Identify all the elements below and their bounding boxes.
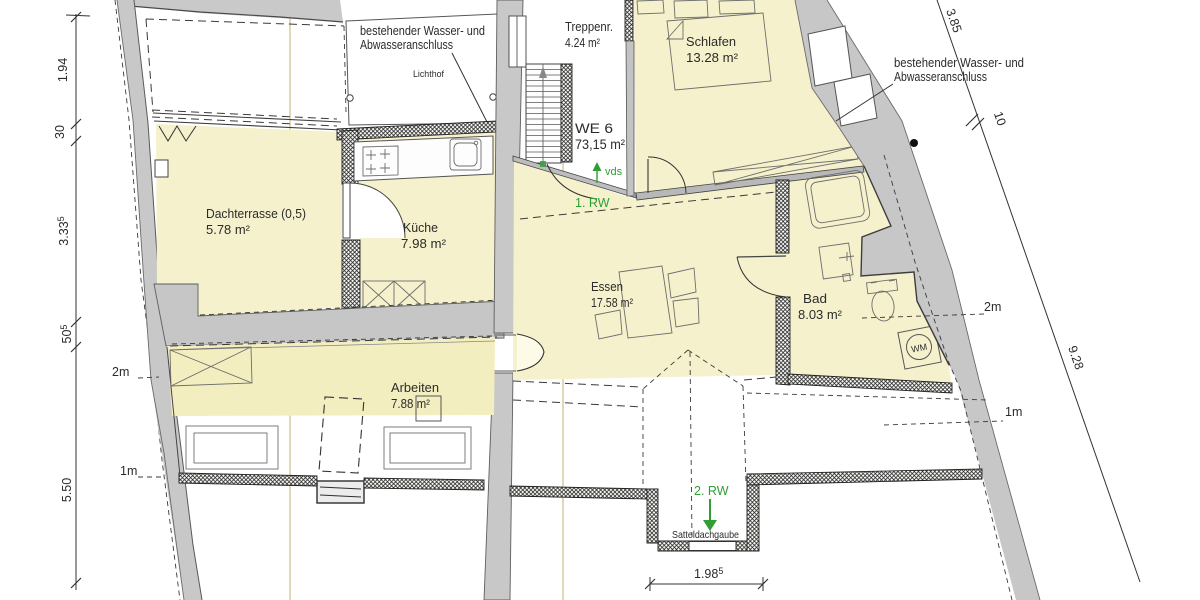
svg-text:1.94: 1.94 [56, 58, 70, 82]
svg-text:5.50: 5.50 [60, 478, 74, 502]
svg-text:bestehender Wasser- und: bestehender Wasser- und [894, 55, 1024, 70]
svg-text:Schlafen: Schlafen [686, 34, 736, 49]
svg-text:Essen: Essen [591, 279, 623, 294]
svg-text:Küche: Küche [403, 220, 438, 235]
svg-text:Satteldachgaube: Satteldachgaube [672, 529, 739, 541]
svg-text:5.78 m²: 5.78 m² [206, 222, 251, 237]
svg-text:1m: 1m [120, 464, 137, 478]
svg-text:Dachterrasse (0,5): Dachterrasse (0,5) [206, 206, 306, 221]
svg-text:bestehender Wasser- und: bestehender Wasser- und [360, 23, 485, 38]
svg-text:Arbeiten: Arbeiten [391, 380, 439, 395]
svg-text:4.24 m²: 4.24 m² [565, 35, 601, 50]
svg-text:2. RW: 2. RW [694, 484, 729, 498]
svg-text:17.58 m²: 17.58 m² [591, 295, 634, 310]
svg-text:30: 30 [53, 125, 67, 139]
svg-text:13.28 m²: 13.28 m² [686, 50, 739, 65]
svg-text:Bad: Bad [803, 291, 827, 306]
svg-text:Abwasseranschluss: Abwasseranschluss [894, 69, 987, 84]
svg-text:73,15 m²: 73,15 m² [575, 137, 625, 152]
svg-text:7.88 m²: 7.88 m² [391, 396, 431, 411]
svg-text:8.03 m²: 8.03 m² [798, 307, 843, 322]
svg-text:Abwasseranschluss: Abwasseranschluss [360, 37, 453, 52]
svg-text:2m: 2m [984, 300, 1001, 314]
svg-text:2m: 2m [112, 365, 129, 379]
svg-text:7.98 m²: 7.98 m² [401, 236, 447, 251]
svg-text:vds: vds [605, 166, 623, 178]
svg-text:Treppenr.: Treppenr. [565, 19, 613, 34]
svg-text:1m: 1m [1005, 405, 1022, 419]
svg-text:Lichthof: Lichthof [413, 69, 444, 80]
svg-text:1. RW: 1. RW [575, 196, 610, 210]
svg-text:WE 6: WE 6 [575, 121, 613, 136]
